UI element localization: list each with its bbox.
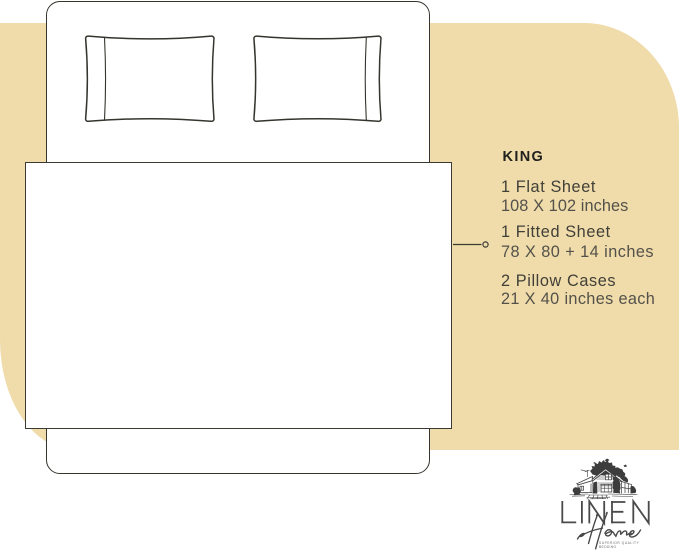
svg-text:BEDDING: BEDDING [599, 545, 617, 549]
